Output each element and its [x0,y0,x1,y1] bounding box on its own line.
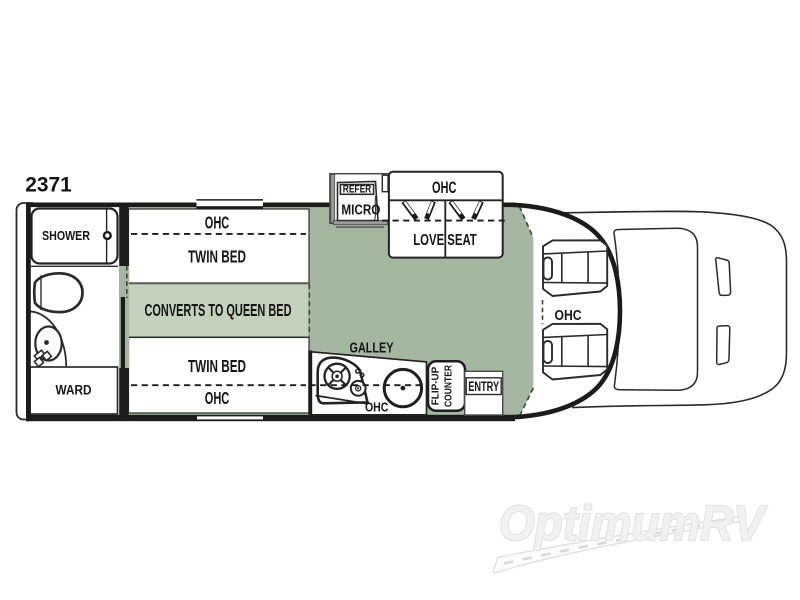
svg-text:CONVERTS TO QUEEN BED: CONVERTS TO QUEEN BED [145,300,292,320]
svg-text:OHC: OHC [555,308,582,324]
svg-text:MICRO: MICRO [341,202,380,218]
svg-text:2371: 2371 [25,172,72,196]
svg-text:OHC: OHC [205,213,230,233]
svg-text:TWIN BED: TWIN BED [188,246,246,266]
svg-text:GALLEY: GALLEY [350,339,394,356]
svg-text:WARD: WARD [56,383,92,398]
svg-text:REFER: REFER [343,184,372,196]
svg-text:TWIN BED: TWIN BED [188,356,246,376]
svg-text:OHC: OHC [432,178,457,197]
svg-text:LOVE SEAT: LOVE SEAT [413,232,477,249]
svg-text:ENTRY: ENTRY [468,379,499,394]
svg-text:OptimumRV: OptimumRV [499,497,768,551]
svg-text:COUNTER: COUNTER [444,364,455,407]
svg-text:FLIP-UP: FLIP-UP [431,366,442,405]
svg-text:OHC: OHC [365,400,389,414]
svg-text:SHOWER: SHOWER [42,228,90,243]
svg-text:OHC: OHC [205,388,230,408]
